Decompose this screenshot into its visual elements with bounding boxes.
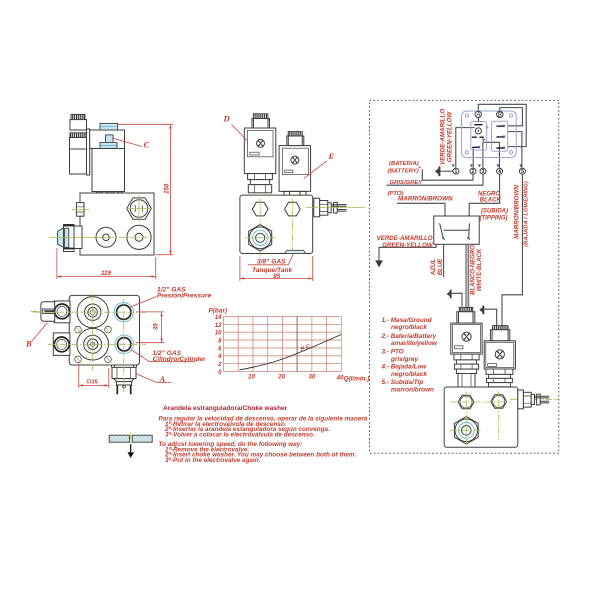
svg-text:GRIS/GREY: GRIS/GREY	[390, 180, 424, 186]
svg-text:39: 39	[153, 323, 160, 330]
svg-text:B: B	[498, 113, 502, 119]
svg-text:+: +	[418, 165, 421, 171]
svg-text:gris/grey: gris/grey	[390, 356, 418, 363]
svg-text:10: 10	[215, 330, 222, 337]
svg-text:12: 12	[215, 322, 222, 329]
svg-text:(SUBIDA): (SUBIDA)	[481, 209, 508, 215]
svg-text:Tanque/Tank: Tanque/Tank	[252, 267, 293, 274]
svg-text:P(bar): P(bar)	[209, 307, 227, 314]
svg-text:(TIPPING): (TIPPING)	[480, 216, 508, 222]
svg-text:14: 14	[215, 314, 222, 321]
svg-text:VERDE-AMARILLO: VERDE-AMARILLO	[440, 109, 447, 165]
svg-text:4.- Bajada/Low: 4.- Bajada/Low	[381, 364, 428, 371]
svg-text:1.- Masa/Ground: 1.- Masa/Ground	[382, 317, 433, 324]
svg-text:Cilindro/Cylinder: Cilindro/Cylinder	[153, 356, 207, 363]
svg-text:WHITE-BLACK: WHITE-BLACK	[477, 248, 483, 291]
svg-text:MARRON/BROWN: MARRON/BROWN	[398, 196, 453, 203]
svg-text:NEGRO: NEGRO	[478, 191, 500, 197]
svg-text:Q(l/min.): Q(l/min.)	[344, 376, 370, 383]
svg-text:20: 20	[277, 374, 285, 381]
svg-text:A: A	[475, 113, 480, 119]
svg-text:3º-Put in the electrovalve aga: 3º-Put in the electrovalve again.	[165, 457, 261, 464]
svg-text:10: 10	[248, 374, 255, 381]
svg-text:BLUE: BLUE	[437, 258, 444, 276]
svg-text:amarillo/yellow: amarillo/yellow	[391, 340, 438, 347]
svg-text:35: 35	[91, 380, 98, 386]
svg-text:negro/black: negro/black	[391, 324, 427, 331]
svg-text:119: 119	[101, 270, 111, 277]
svg-text:(BATERIA): (BATERIA)	[389, 161, 419, 167]
svg-text:B: B	[25, 338, 32, 348]
svg-text:MARRON/BROWN: MARRON/BROWN	[514, 185, 521, 239]
svg-text:C: C	[144, 139, 150, 149]
svg-text:BLANCO-NEGRO: BLANCO-NEGRO	[470, 245, 476, 295]
svg-text:150: 150	[164, 183, 171, 194]
svg-text:2.- Bateria/Battery: 2.- Bateria/Battery	[381, 333, 437, 340]
svg-text:negro/black: negro/black	[391, 371, 427, 378]
svg-text:30: 30	[309, 374, 316, 381]
svg-text:(BAJADA / LOWERING): (BAJADA / LOWERING)	[524, 181, 530, 247]
svg-text:85: 85	[273, 273, 280, 280]
svg-text:GREEN-YELLOW: GREEN-YELLOW	[447, 111, 454, 163]
svg-text:GREEN-YELLOW: GREEN-YELLOW	[382, 242, 434, 249]
svg-text:1: 1	[455, 169, 458, 175]
svg-text:E: E	[328, 151, 335, 161]
svg-text:BLACK: BLACK	[480, 198, 502, 204]
svg-text:4: 4	[217, 353, 222, 360]
svg-text:5.- Subida/Tip: 5.- Subida/Tip	[382, 379, 424, 386]
svg-text:Presión/Pressure: Presión/Pressure	[157, 293, 212, 300]
svg-text:(BATTERY): (BATTERY)	[388, 168, 419, 174]
svg-text:Arandela estranguladora/Choke: Arandela estranguladora/Choke washer	[163, 405, 288, 412]
svg-text:2: 2	[217, 361, 222, 368]
svg-text:D: D	[223, 114, 230, 124]
svg-text:3º-Volver a colocar la electro: 3º-Volver a colocar la electroválvula de…	[165, 431, 315, 438]
svg-text:marron/brown: marron/brown	[391, 386, 434, 393]
svg-text:3.- PTO: 3.- PTO	[382, 349, 404, 356]
